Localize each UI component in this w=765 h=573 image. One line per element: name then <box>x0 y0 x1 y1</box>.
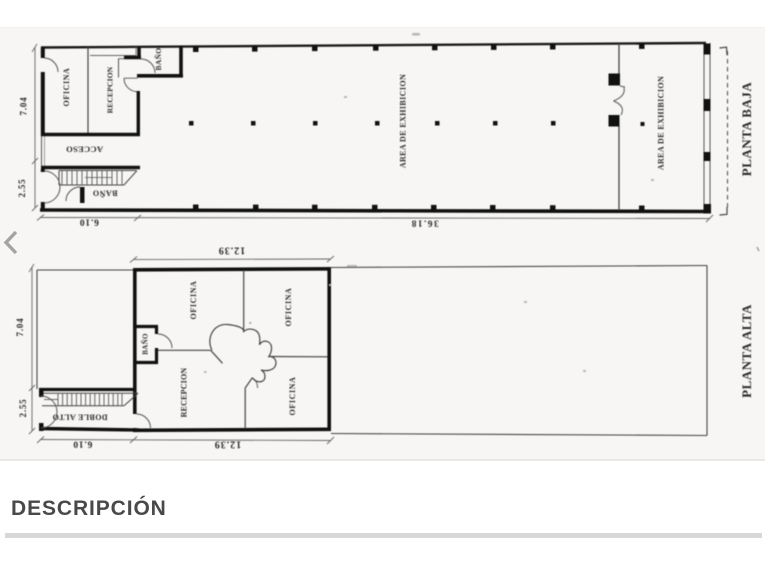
svg-text:OFICINA: OFICINA <box>189 281 198 320</box>
svg-text:6.10: 6.10 <box>73 439 93 449</box>
svg-text:36.18: 36.18 <box>410 218 438 228</box>
svg-text:2.55: 2.55 <box>18 399 28 418</box>
svg-text:12.39: 12.39 <box>218 245 246 256</box>
svg-text:RECEPCION: RECEPCION <box>106 66 115 113</box>
svg-text:OFICINA: OFICINA <box>284 288 293 327</box>
svg-text:PLANTA BAJA: PLANTA BAJA <box>739 82 754 177</box>
svg-text:7.04: 7.04 <box>15 318 25 337</box>
svg-text:2.55: 2.55 <box>17 179 27 198</box>
svg-text:BAÑO: BAÑO <box>154 48 163 71</box>
svg-text:PLANTA ALTA: PLANTA ALTA <box>739 304 754 398</box>
svg-text:6.10: 6.10 <box>79 217 99 227</box>
svg-text:ACCESO: ACCESO <box>66 145 103 155</box>
svg-text:RECEPCION: RECEPCION <box>180 368 189 418</box>
svg-text:BAÑO: BAÑO <box>92 189 117 198</box>
svg-text:BAÑO: BAÑO <box>142 333 150 355</box>
svg-text:7.04: 7.04 <box>19 97 29 116</box>
svg-text:DOBLE ALTO: DOBLE ALTO <box>52 413 107 422</box>
svg-text:OFICINA: OFICINA <box>288 377 297 416</box>
svg-text:AREA DE EXHIBICION: AREA DE EXHIBICION <box>657 76 666 170</box>
svg-text:OFICINA: OFICINA <box>62 68 71 107</box>
svg-text:12.39: 12.39 <box>214 439 242 450</box>
svg-text:AREA DE EXHIBICION: AREA DE EXHIBICION <box>399 74 408 168</box>
